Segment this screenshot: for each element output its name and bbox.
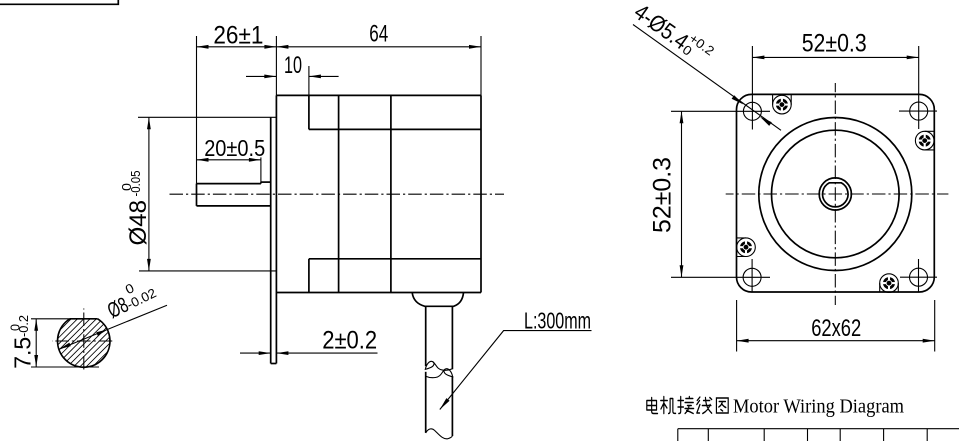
svg-text:7.5: 7.5	[10, 337, 36, 369]
svg-text:2±0.2: 2±0.2	[322, 327, 377, 355]
svg-text:64: 64	[369, 21, 388, 48]
svg-text:-0.05: -0.05	[129, 170, 143, 196]
svg-text:26±1: 26±1	[213, 22, 263, 50]
svg-text:Ø48: Ø48	[125, 200, 152, 246]
svg-text:L:300mm: L:300mm	[524, 308, 591, 334]
svg-text:52±0.3: 52±0.3	[649, 157, 677, 233]
svg-text:52±0.3: 52±0.3	[802, 30, 867, 58]
svg-text:Motor Wiring Diagram: Motor Wiring Diagram	[733, 396, 904, 418]
svg-text:-0.2: -0.2	[17, 315, 31, 337]
svg-text:10: 10	[284, 52, 302, 79]
svg-text:62x62: 62x62	[811, 315, 861, 342]
svg-text:20±0.5: 20±0.5	[204, 135, 265, 161]
